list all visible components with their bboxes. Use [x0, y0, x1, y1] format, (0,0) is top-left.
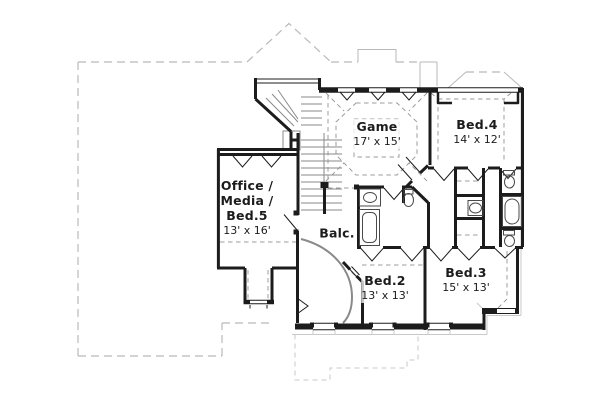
toilet-tank	[504, 231, 515, 236]
balcony-rail-arc	[301, 239, 352, 323]
vanity-counter	[360, 189, 381, 206]
room-dims: 13' x 13'	[361, 288, 409, 303]
room-name: Bed.3	[442, 265, 490, 280]
room-label-balcony: Balc.	[319, 226, 354, 241]
room-name: Game	[353, 119, 401, 134]
toilet-bowl	[505, 236, 515, 247]
toilet-bowl	[505, 176, 515, 188]
room-label-office: Office / Media / Bed.5 13' x 16'	[221, 178, 274, 238]
room-name: Media /	[221, 193, 274, 208]
bath-fixtures	[360, 171, 522, 247]
floor-plan-drawing	[0, 0, 600, 401]
room-label-bed3: Bed.3 15' x 13'	[442, 265, 490, 295]
room-dims: 13' x 16'	[221, 223, 274, 238]
floor-plan: Game 17' x 15' Bed.4 14' x 12' Office / …	[0, 0, 600, 401]
room-dims: 17' x 15'	[353, 134, 401, 149]
room-name: Office /	[221, 178, 274, 193]
room-label-game: Game 17' x 15'	[353, 119, 401, 149]
room-label-bed2: Bed.2 13' x 13'	[361, 273, 409, 303]
room-label-bed4: Bed.4 14' x 12'	[453, 117, 501, 147]
room-name: Bed.4	[453, 117, 501, 132]
room-name: Balc.	[319, 226, 354, 241]
sink	[470, 203, 482, 213]
sink	[364, 193, 377, 203]
room-dims: 14' x 12'	[453, 132, 501, 147]
room-name: Bed.2	[361, 273, 409, 288]
room-name: Bed.5	[221, 208, 274, 223]
staircase	[260, 90, 352, 323]
room-dims: 15' x 13'	[442, 280, 490, 295]
